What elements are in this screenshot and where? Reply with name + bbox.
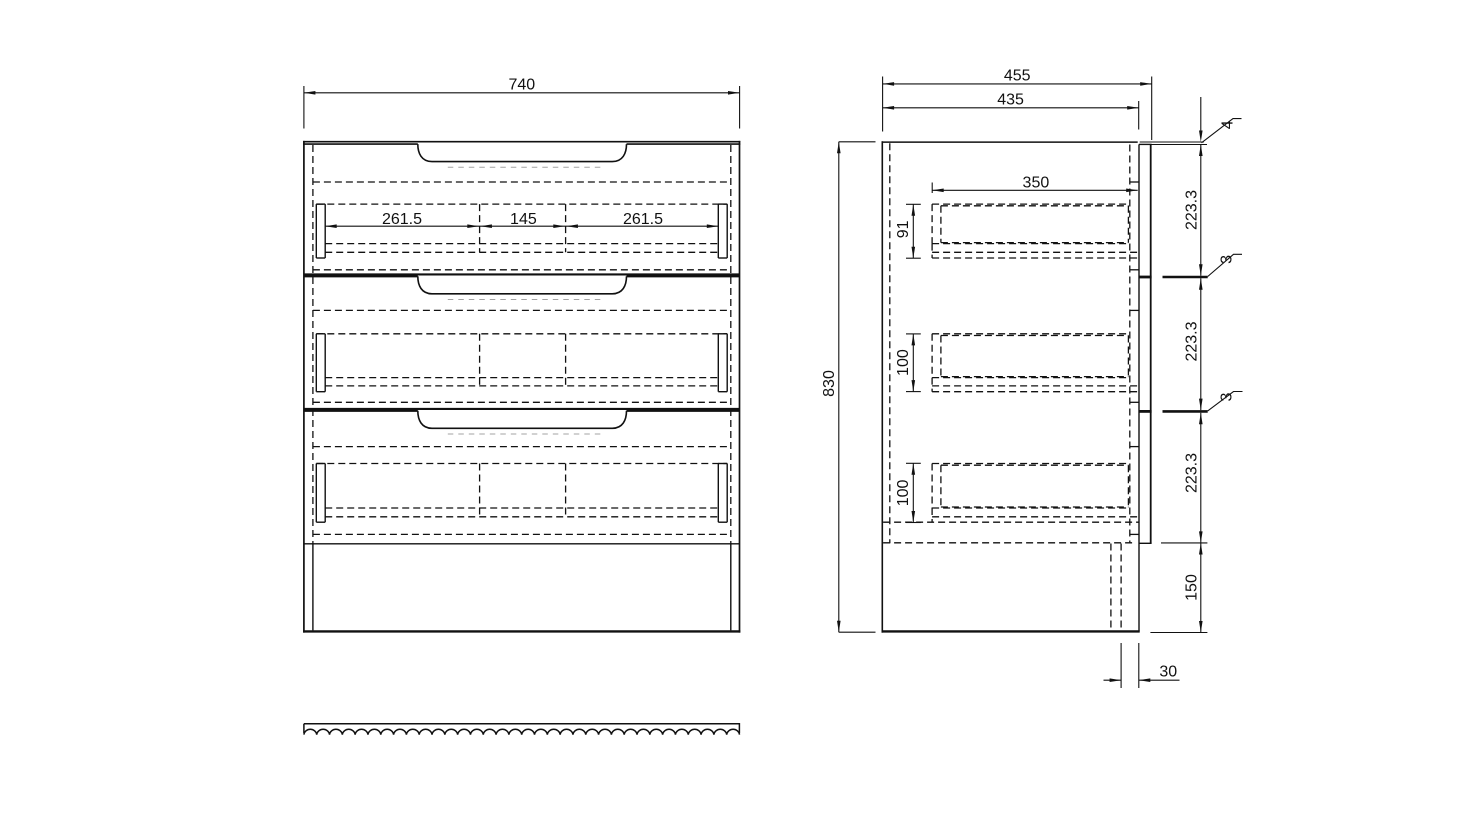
svg-text:100: 100 — [895, 349, 912, 376]
svg-text:435: 435 — [997, 91, 1024, 108]
svg-text:261.5: 261.5 — [382, 211, 422, 228]
svg-text:4: 4 — [1219, 120, 1236, 129]
svg-text:740: 740 — [508, 76, 535, 93]
svg-text:100: 100 — [895, 479, 912, 506]
svg-text:830: 830 — [821, 370, 838, 397]
svg-text:261.5: 261.5 — [623, 211, 663, 228]
svg-text:150: 150 — [1183, 574, 1200, 601]
svg-text:223.3: 223.3 — [1183, 190, 1200, 230]
svg-text:3: 3 — [1219, 392, 1236, 401]
svg-text:455: 455 — [1004, 67, 1031, 84]
svg-text:91: 91 — [895, 220, 912, 238]
svg-text:223.3: 223.3 — [1183, 453, 1200, 493]
svg-text:30: 30 — [1159, 664, 1177, 681]
svg-text:145: 145 — [510, 211, 537, 228]
svg-text:3: 3 — [1219, 255, 1236, 264]
svg-text:350: 350 — [1023, 174, 1050, 191]
svg-text:223.3: 223.3 — [1183, 321, 1200, 361]
